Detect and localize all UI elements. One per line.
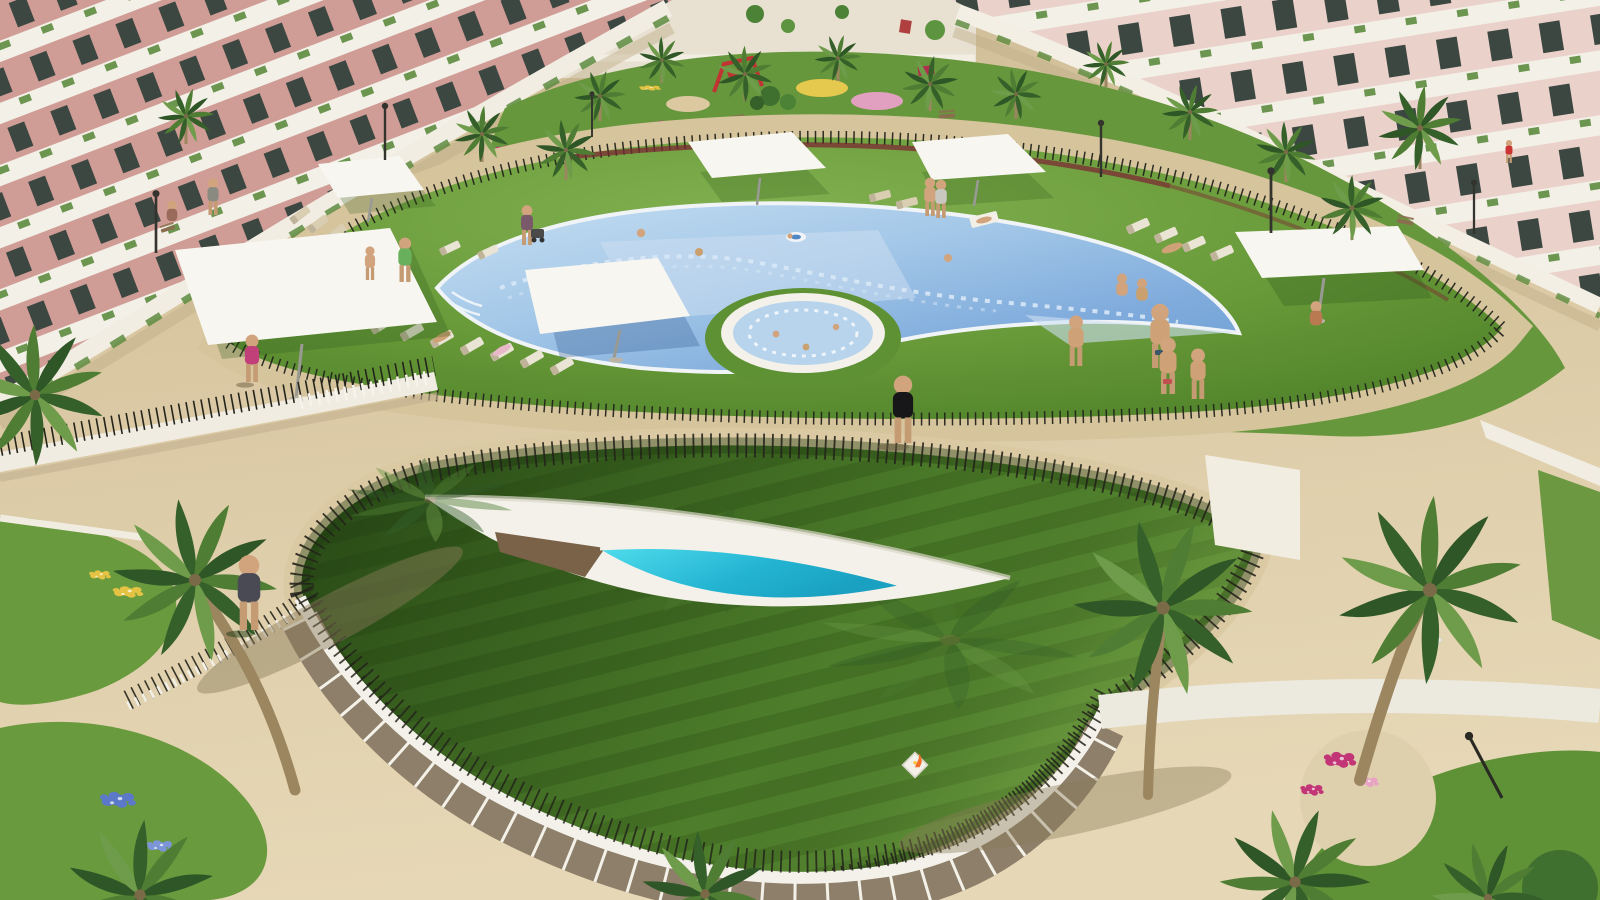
swimmer-head (695, 248, 703, 256)
spa-bather (833, 324, 839, 330)
person-sitting-pool-edge (1136, 278, 1148, 300)
person-sitting-pool-edge (1116, 273, 1128, 295)
play-circle-yellow (796, 79, 848, 97)
play-circle-sand (666, 96, 710, 112)
swimmer-head (637, 229, 645, 237)
stroller (531, 229, 544, 238)
round-spa-pool (721, 293, 885, 373)
playground-equipment-far (899, 19, 912, 34)
parasol-canopy (1235, 226, 1424, 278)
swim-shorts (1163, 379, 1172, 384)
play-circle-pink (851, 92, 903, 110)
person (1310, 301, 1322, 325)
pool-float (786, 232, 806, 242)
spa-bather (803, 344, 810, 351)
white-ramp-wall (1205, 455, 1300, 560)
person-on-bench (167, 201, 178, 221)
render-stage (0, 0, 1600, 900)
resort-aerial-render (0, 0, 1600, 900)
spa-bather (773, 331, 780, 338)
white-walkway (1100, 696, 1600, 712)
swimmer-head (944, 254, 952, 262)
